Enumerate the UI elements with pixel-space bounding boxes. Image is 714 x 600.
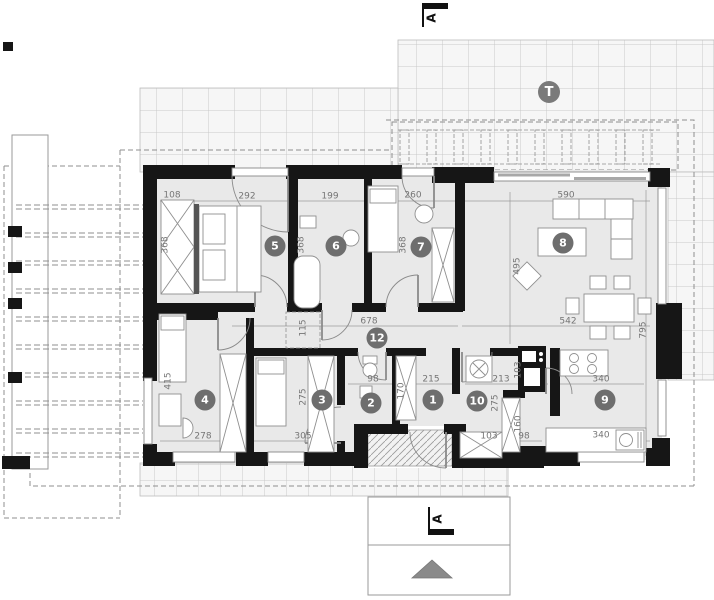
dimension-label: 678 [360, 318, 377, 327]
room-badge-8: 8 [553, 233, 574, 254]
room-badge-1: 1 [423, 390, 444, 411]
section-letter: A [426, 13, 438, 22]
dimension-label: 368 [162, 236, 171, 253]
dimension-label: 340 [592, 376, 609, 385]
plan-labels: T A A 5678124321109108292199260590368368… [0, 0, 714, 600]
dimension-label: 292 [238, 193, 255, 202]
dimension-label: 199 [321, 193, 338, 202]
room-badge-7: 7 [411, 237, 432, 258]
dimension-label: 795 [640, 321, 649, 338]
room-badge-9: 9 [595, 390, 616, 411]
room-badge-12: 12 [367, 328, 388, 349]
dimension-label: 170 [398, 382, 407, 399]
room-badge-5: 5 [265, 236, 286, 257]
dimension-label: 215 [422, 376, 439, 385]
dimension-label: 213 [492, 376, 509, 385]
dimension-label: 103 [480, 433, 497, 442]
terrace-badge: T [538, 81, 560, 103]
dimension-label: 278 [194, 433, 211, 442]
room-badge-10: 10 [467, 391, 488, 412]
dimension-label: 542 [559, 318, 576, 327]
section-marker-top: A [420, 3, 450, 37]
section-letter: A [432, 514, 444, 523]
room-badge-4: 4 [195, 390, 216, 411]
floor-plan: T A A 5678124321109108292199260590368368… [0, 0, 714, 600]
dimension-label: 368 [400, 236, 409, 253]
dimension-label: 590 [557, 192, 574, 201]
dimension-label: 103 [515, 361, 524, 378]
dimension-label: 98 [518, 433, 529, 442]
dimension-label: 495 [514, 257, 523, 274]
dimension-label: 275 [492, 394, 501, 411]
dimension-label: 415 [165, 372, 174, 389]
room-badge-2: 2 [361, 393, 382, 414]
dimension-label: 275 [300, 388, 309, 405]
section-marker-bottom: A [424, 505, 454, 539]
dimension-label: 160 [515, 415, 524, 432]
room-badge-3: 3 [312, 390, 333, 411]
dimension-label: 368 [298, 236, 307, 253]
dimension-label: 260 [404, 192, 421, 201]
room-badge-6: 6 [326, 236, 347, 257]
dimension-label: 108 [163, 192, 180, 201]
dimension-label: 305 [294, 433, 311, 442]
dimension-label: 98 [367, 376, 378, 385]
dimension-label: 340 [592, 432, 609, 441]
dimension-label: 115 [300, 319, 309, 336]
